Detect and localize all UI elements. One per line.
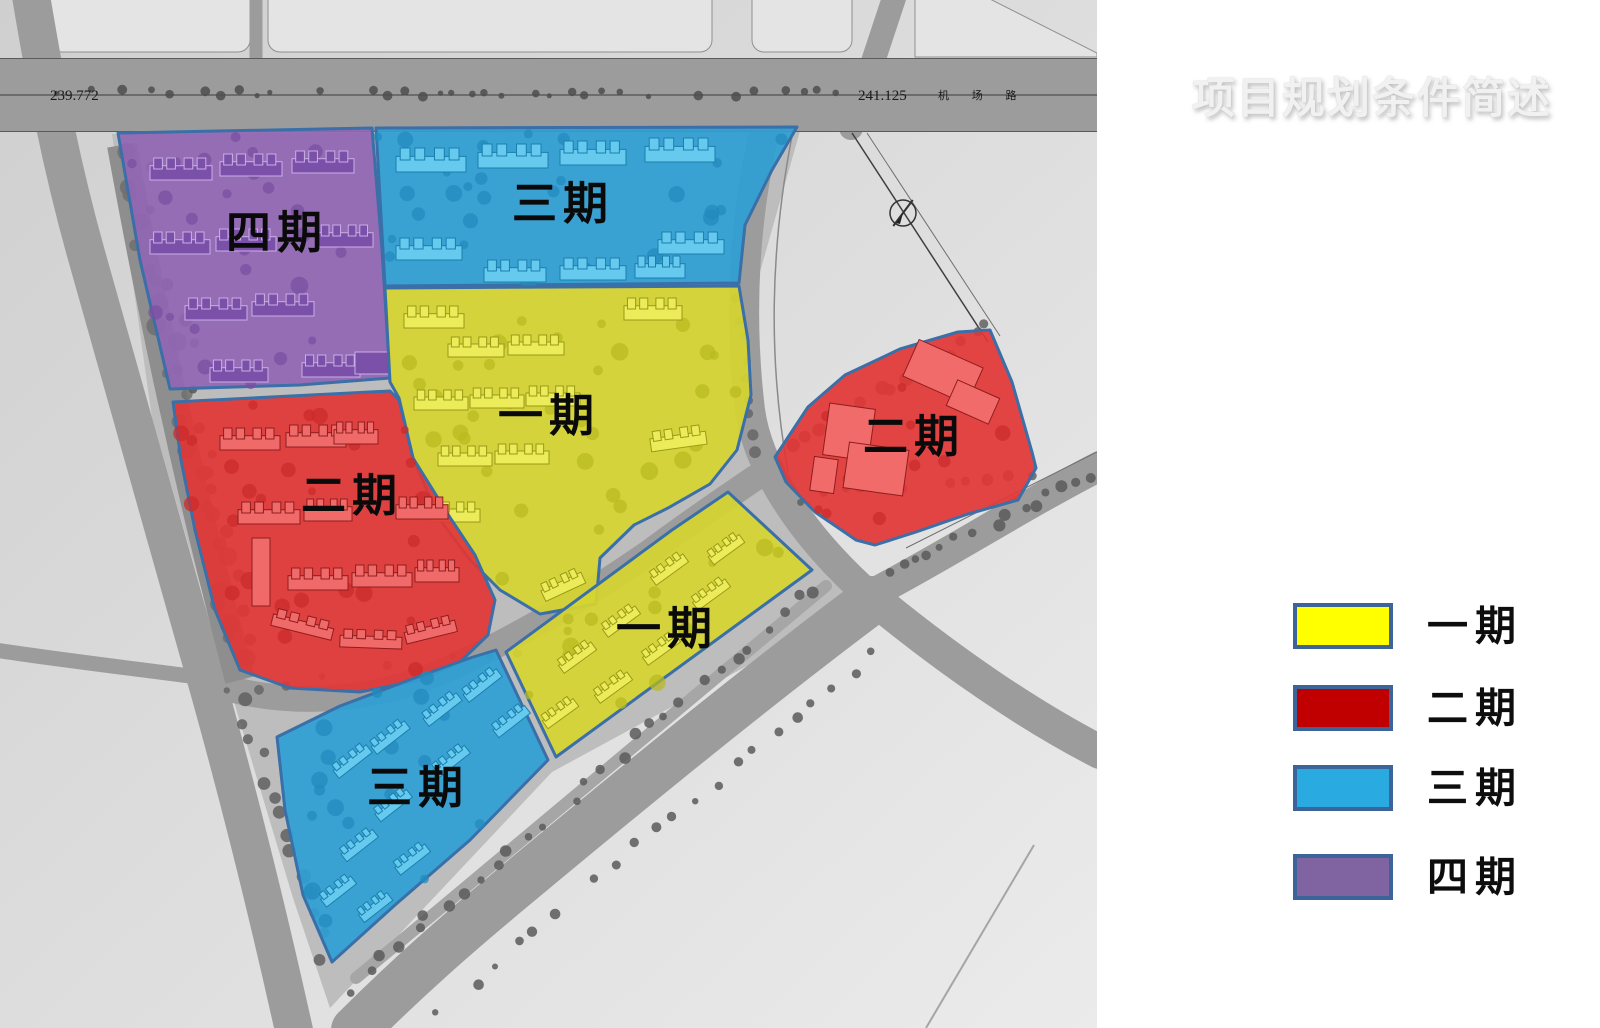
road-label-1: 241.125 [858,88,907,104]
city-block [268,0,712,52]
legend-swatch-phase3 [1293,765,1393,811]
city-block [45,0,250,52]
side-panel: 项目规划条件简述 一期 二期 三期 四期 [1097,0,1600,1028]
legend-label-phase4: 四期 [1427,851,1587,903]
road-label-0: 239.772 [50,88,99,104]
parcel-label-phase3-north: 三期 [512,179,614,229]
legend-swatch-phase2 [1293,685,1393,731]
parcel-label-phase4-northwest: 四期 [226,208,328,258]
building-footprint [252,538,270,606]
slide-title: 项目规划条件简述 [1182,64,1562,126]
parcel-label-phase1-central: 一期 [498,391,600,441]
city-block [752,0,852,52]
parcel-label-phase3-south: 三期 [367,763,469,813]
road-label-2: 机 场 路 [938,88,1027,102]
legend-swatch-phase1 [1293,603,1393,649]
building-footprint [810,456,838,493]
parcel-label-phase2-west: 二期 [301,471,403,521]
parcel-label-phase2-east: 二期 [863,412,965,462]
parcel-phase3-north: 三期 [373,127,797,289]
legend-label-phase1: 一期 [1427,600,1587,652]
site-plan-map: 四期三期一期二期一期三期二期239.772241.125机 场 路 [0,0,1097,1028]
site-plan-svg: 四期三期一期二期一期三期二期239.772241.125机 场 路 [0,0,1097,1028]
building-footprint [355,352,391,374]
parcel-label-phase1-south: 一期 [616,604,718,654]
legend-label-phase3: 三期 [1427,762,1587,814]
slide: 四期三期一期二期一期三期二期239.772241.125机 场 路 项目规划条件… [0,0,1600,1028]
legend-swatch-phase4 [1293,854,1393,900]
legend-label-phase2: 二期 [1427,682,1587,734]
